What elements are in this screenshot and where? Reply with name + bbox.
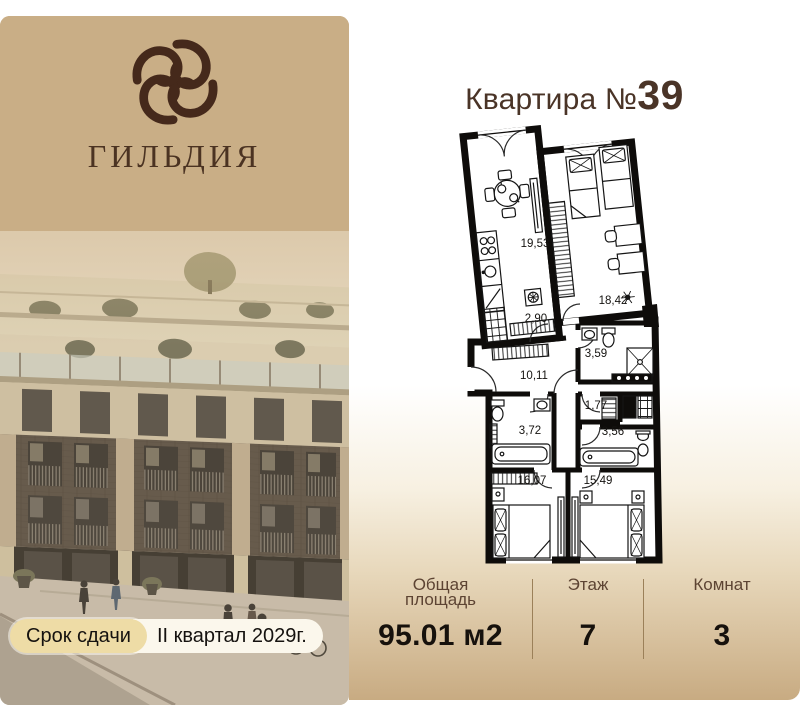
brand-block: ГИЛЬДИЯ (0, 36, 349, 175)
room-area-label: 16,07 (518, 475, 547, 487)
brand-name: ГИЛЬДИЯ (0, 138, 349, 175)
stat-label: Общая площадь (381, 577, 501, 611)
delivery-badge-value: II квартал 2029г. (133, 619, 323, 653)
room-area-label: 15,49 (584, 475, 613, 487)
room-area-label: 2,90 (525, 313, 547, 325)
apartment-title: Квартира № 39 (349, 72, 800, 119)
building-panel: ГИЛЬДИЯ Срок сдачи II квартал 2029г. (0, 16, 349, 705)
stat-floor: Этаж 7 (533, 577, 643, 653)
stat-label: Этаж (568, 577, 609, 611)
stat-value: 7 (580, 619, 597, 653)
apartment-title-prefix: Квартира № (465, 83, 637, 117)
delivery-badge-label: Срок сдачи (10, 619, 147, 653)
stat-label: Комнат (693, 577, 750, 611)
apartment-number: 39 (637, 72, 684, 119)
room-area-label: 3,59 (585, 348, 607, 360)
delivery-badge: Срок сдачи II квартал 2029г. (10, 619, 323, 653)
room-area-label: 18,42 (599, 295, 628, 307)
apartment-panel: Квартира № 39 (349, 0, 800, 700)
stats-bar: Общая площадь 95.01 м2 Этаж 7 Комнат 3 (349, 577, 800, 659)
room-area-label: 19,53 (521, 238, 550, 250)
floor-plan: 19,53 18,42 2,90 3,59 10,11 1,77 3,72 3,… (430, 120, 690, 575)
stat-total-area: Общая площадь 95.01 м2 (349, 577, 532, 653)
room-area-label: 10,11 (520, 370, 548, 382)
knot-icon (129, 36, 221, 128)
listing-card[interactable]: ГИЛЬДИЯ Срок сдачи II квартал 2029г. Ква… (0, 0, 800, 720)
stat-value: 3 (714, 619, 731, 653)
stat-value: 95.01 м2 (378, 619, 503, 653)
room-area-label: 1,77 (585, 400, 607, 412)
room-area-label: 3,56 (602, 426, 624, 438)
stat-rooms: Комнат 3 (644, 577, 800, 653)
room-area-label: 3,72 (519, 425, 541, 437)
